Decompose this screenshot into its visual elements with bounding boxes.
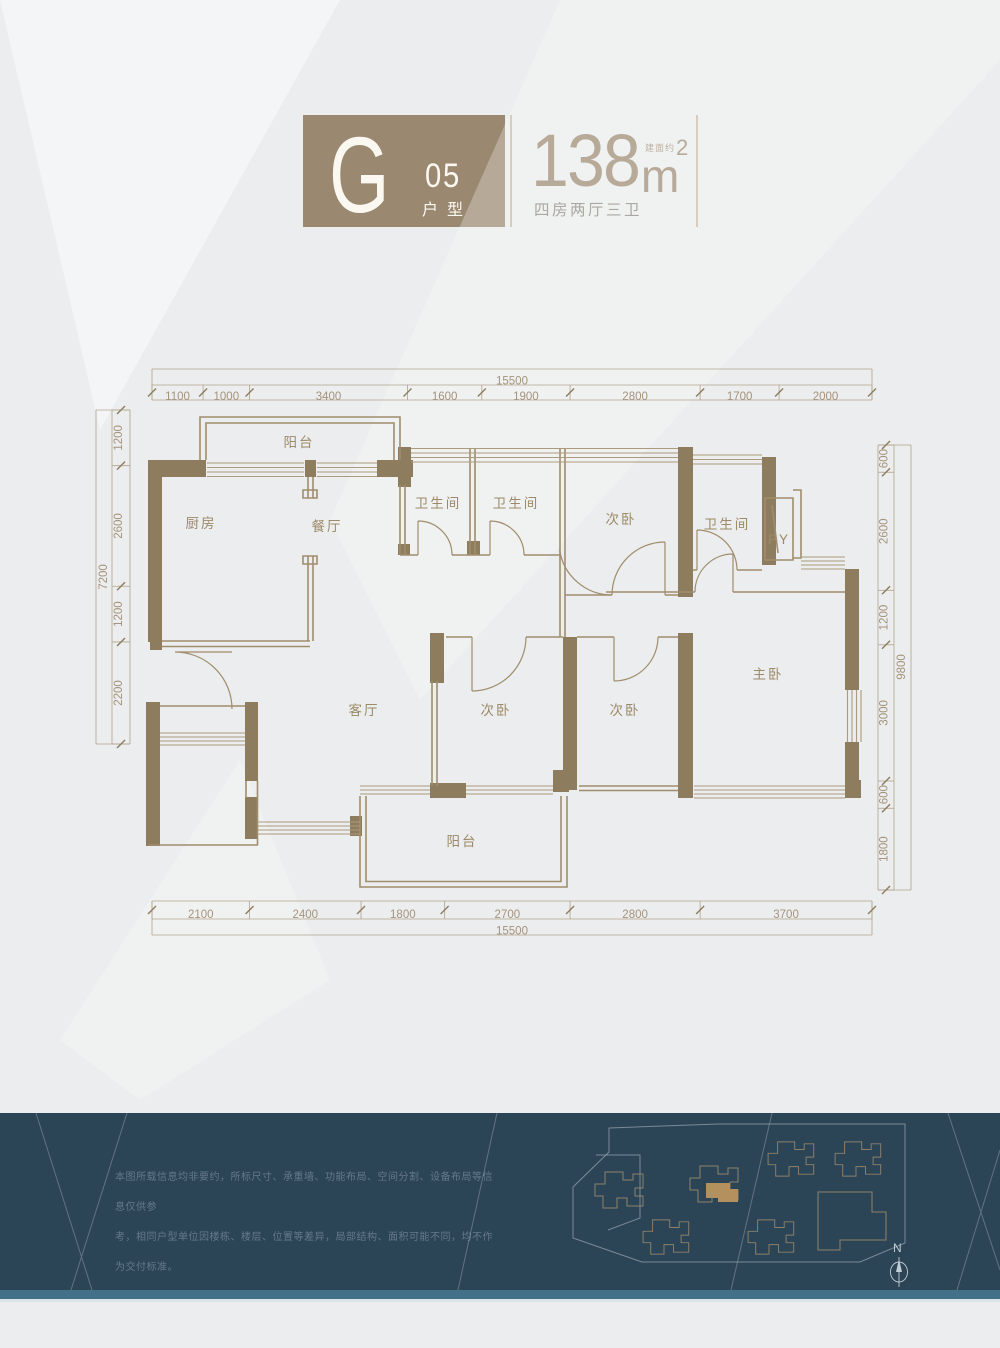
- dimension-right: 60026001200300060018009800: [878, 441, 911, 894]
- dim-label-bottom: 2100: [188, 909, 214, 921]
- dim-label-right: 2600: [879, 518, 891, 544]
- disclaimer-line: 本图所载信息均非要约，所标尺寸、承重墙、功能布局、空间分割、设备布局等信息仅供参: [115, 1163, 495, 1223]
- dimension-top: 1100100034001600190028001700200015500: [148, 369, 876, 403]
- dim-label-top: 2000: [813, 391, 839, 403]
- room-label-dining-room: 餐厅: [312, 519, 343, 534]
- area-superscript: 2: [676, 135, 688, 161]
- room-label-bedroom-3: 次卧: [610, 703, 641, 718]
- type-number: 05: [425, 157, 461, 196]
- dimension-chains: 1100100034001600190028001700200015500210…: [96, 369, 911, 938]
- header-divider-right: [696, 115, 698, 227]
- area-value: 138: [531, 124, 639, 198]
- dim-label-right: 1200: [879, 605, 891, 631]
- dimension-left: 12002600120022007200: [96, 406, 130, 748]
- room-label-bathroom-2: 卫生间: [493, 496, 540, 511]
- windows: [160, 449, 861, 835]
- room-label-balcony-north: 阳台: [284, 435, 315, 450]
- room-label-kitchen: 厨房: [186, 516, 217, 531]
- type-label: 户型: [422, 196, 472, 220]
- dim-label-top: 1600: [432, 391, 458, 403]
- room-label-bedroom-2: 次卧: [481, 703, 512, 718]
- dim-total-right: 9800: [896, 654, 908, 680]
- header-divider-left: [510, 115, 512, 227]
- dim-label-left: 2600: [113, 513, 125, 539]
- room-label-master-bedroom: 主卧: [753, 667, 784, 682]
- dim-label-right: 3000: [879, 700, 891, 726]
- type-letter: G: [329, 121, 389, 229]
- type-badge: G 05 户型: [303, 115, 505, 227]
- walls-structural: [146, 447, 861, 846]
- room-label-bathroom-1: 卫生间: [415, 496, 462, 511]
- compass-north-label: N: [893, 1241, 902, 1255]
- dim-label-bottom: 2700: [495, 909, 521, 921]
- dim-label-top: 2800: [622, 391, 648, 403]
- dim-total-left: 7200: [98, 564, 110, 590]
- page: G 05 户型 138 建面约 m 2 四房两厅三卫: [0, 0, 1000, 1348]
- dim-label-top: 1900: [513, 391, 539, 403]
- dim-label-left: 1200: [113, 425, 125, 451]
- area-unit: m: [641, 153, 679, 199]
- doors: [175, 489, 737, 709]
- layout-description: 四房两厅三卫: [534, 198, 642, 220]
- room-label-balcony-south: 阳台: [447, 834, 478, 849]
- dim-label-right: 1800: [879, 836, 891, 862]
- dim-label-bottom: 3700: [773, 909, 799, 921]
- dim-total-bottom: 15500: [496, 926, 528, 938]
- disclaimer-line: 考，相同户型单位因楼栋、楼层、位置等差异，局部结构、面积可能不同，均不作为交付标…: [115, 1223, 495, 1283]
- dimension-bottom: 21002400180027002800370015500: [148, 901, 876, 938]
- dim-label-top: 1000: [214, 391, 240, 403]
- room-label-bathroom-3: 卫生间: [704, 517, 751, 532]
- dim-label-left: 1200: [113, 601, 125, 627]
- room-labels: 阳台厨房餐厅卫生间卫生间次卧卫生间PY主卧客厅次卧次卧阳台: [186, 435, 791, 849]
- dim-label-bottom: 2400: [292, 909, 318, 921]
- room-label-bedroom-north: 次卧: [606, 512, 637, 527]
- walls-thin: [148, 417, 845, 887]
- dim-label-bottom: 1800: [390, 909, 416, 921]
- dim-label-left: 2200: [113, 680, 125, 706]
- dim-label-top: 1700: [727, 391, 753, 403]
- footer-light-strip: [0, 1299, 1000, 1302]
- dim-label-right: 600: [879, 785, 891, 804]
- dim-label-right: 600: [879, 449, 891, 468]
- dim-label-top: 1100: [165, 391, 190, 403]
- room-label-py-shaft: PY: [768, 532, 790, 547]
- dim-label-bottom: 2800: [622, 909, 648, 921]
- footer-accent-strip: [0, 1290, 1000, 1299]
- dim-total-top: 15500: [496, 376, 528, 388]
- dim-label-top: 3400: [316, 391, 342, 403]
- room-label-living-room: 客厅: [349, 702, 380, 718]
